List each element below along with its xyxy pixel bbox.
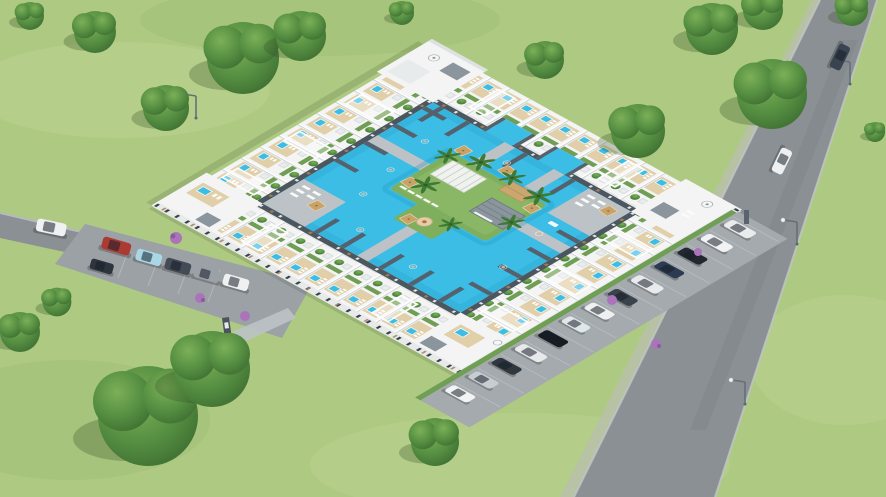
aerial-render-canvas (0, 0, 886, 497)
entrance-sign (744, 210, 749, 224)
tree (0, 312, 40, 352)
aerial-render: Aerial 3D rendering of a residential com… (0, 0, 886, 497)
